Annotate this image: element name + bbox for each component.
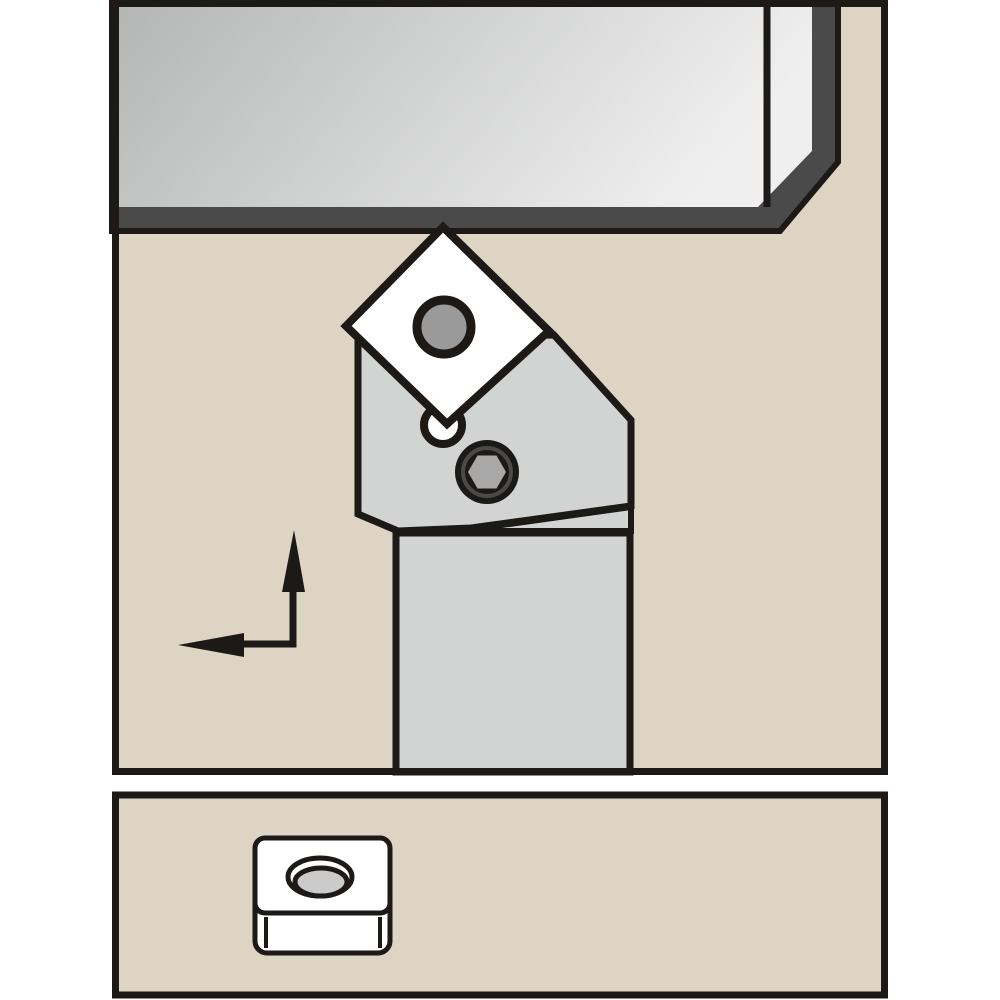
spare-insert	[255, 838, 390, 953]
insert-center-hole	[417, 300, 471, 354]
toolholder	[358, 335, 631, 772]
toolholder-shank	[396, 533, 630, 772]
toolholder-illustration	[0, 0, 1000, 1000]
clamp-screw	[455, 440, 519, 504]
detail-panel	[116, 795, 885, 995]
workpiece-face	[119, 4, 812, 207]
detail-panel-background	[116, 795, 885, 995]
workpiece	[112, 0, 838, 231]
spare-insert-hole-inner	[295, 868, 347, 896]
illustration-stage	[0, 0, 1000, 1000]
main-panel	[112, 0, 888, 775]
